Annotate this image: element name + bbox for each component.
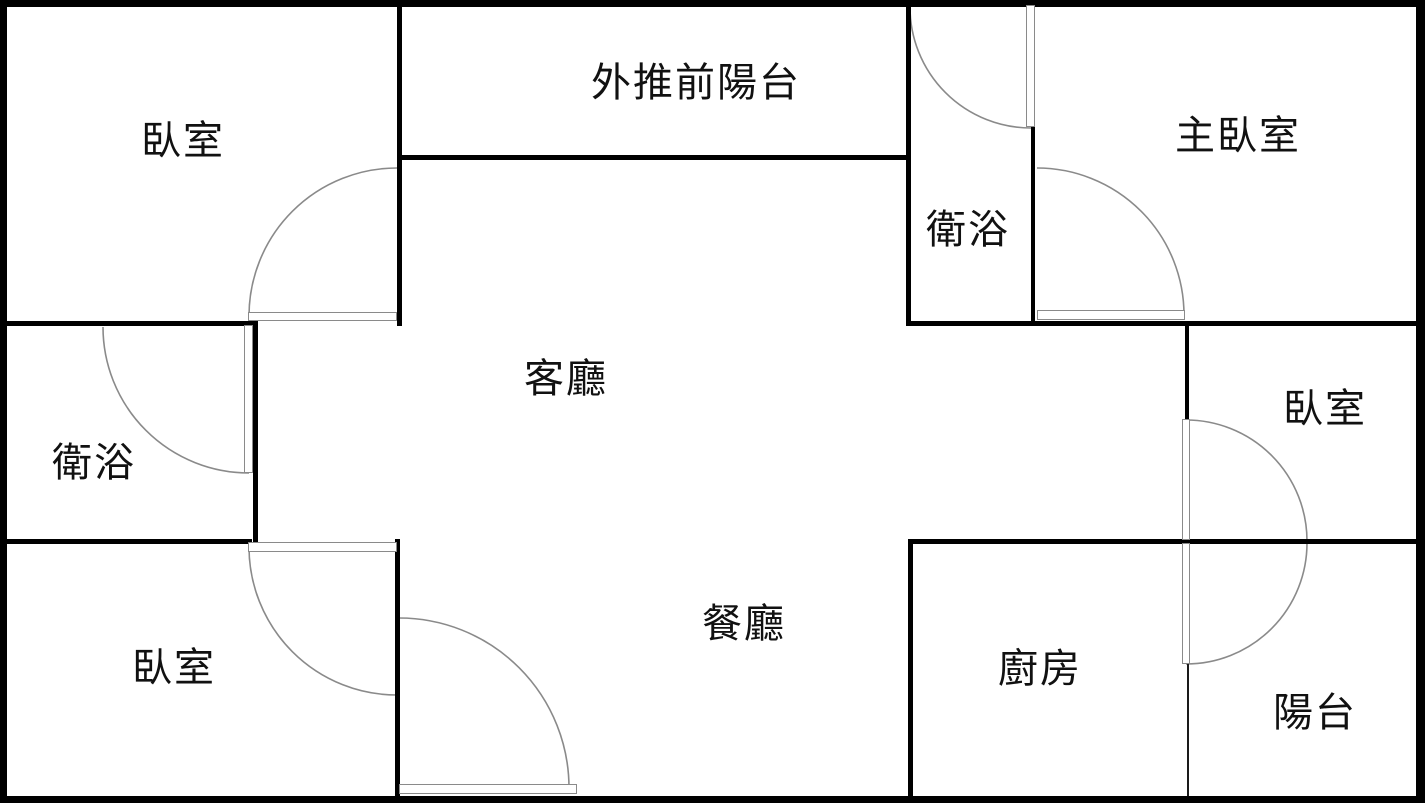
door-arc-master-bedroom — [1037, 168, 1184, 315]
room-label-bedroom-top-left: 臥室 — [141, 108, 225, 166]
wall-bedroom-r-left — [1185, 321, 1189, 420]
wall-master-bottom — [906, 321, 1189, 326]
door-leaf-bathroom-left — [244, 325, 253, 473]
door-arc-bathroom-top-right — [910, 7, 1031, 128]
door-leaf-master-bedroom — [1037, 310, 1185, 320]
wall-bedroom-r-top — [1185, 321, 1425, 326]
door-arc-bedroom-bottom-left — [249, 547, 397, 695]
door-leaf-bathroom-top-right — [1026, 5, 1035, 127]
room-label-bathroom-left: 衛浴 — [52, 430, 136, 488]
wall-bath-tr-left — [906, 5, 911, 326]
room-label-rear-balcony: 陽台 — [1273, 680, 1357, 738]
room-label-bathroom-top-right: 衛浴 — [926, 197, 1010, 255]
wall-bath-l-right — [253, 321, 258, 544]
door-arc-entry — [399, 618, 569, 788]
wall-kitchen-left — [908, 539, 913, 801]
room-label-living-room: 客廳 — [524, 346, 608, 404]
room-label-master-bedroom: 主臥室 — [1175, 103, 1301, 161]
door-leaf-bedroom-top-left — [248, 312, 397, 321]
wall-bedroom-tl-right — [397, 5, 402, 326]
wall-bath-tr-right — [1031, 125, 1035, 326]
door-arc-bedroom-right — [1186, 420, 1307, 541]
door-leaf-bedroom-right — [1182, 419, 1190, 540]
door-leaf-entry — [399, 784, 577, 794]
wall-balcony-bottom — [399, 155, 908, 160]
door-leaf-bedroom-bottom-left — [248, 542, 397, 552]
door-arc-kitchen-balcony — [1186, 543, 1307, 664]
room-label-bedroom-bottom-left: 臥室 — [132, 635, 216, 693]
door-leaf-kitchen-balcony — [1182, 543, 1190, 664]
room-label-front-balcony: 外推前陽台 — [591, 50, 801, 108]
wall-outer-left — [0, 0, 7, 803]
wall-bath-l-bottom — [0, 539, 252, 544]
wall-bedroom-bl-right — [395, 539, 400, 801]
door-arc-bedroom-top-left — [249, 168, 397, 316]
room-label-bedroom-right: 臥室 — [1283, 376, 1367, 434]
room-label-kitchen: 廚房 — [998, 636, 1082, 694]
wall-outer-right — [1416, 0, 1425, 803]
floorplan-canvas: 臥室外推前陽台主臥室衛浴客廳衛浴臥室臥室餐廳廚房陽台 — [0, 0, 1425, 803]
room-label-dining-room: 餐廳 — [702, 591, 786, 649]
wall-south-middle — [908, 539, 1425, 544]
wall-bedroom-tl-bottom — [0, 321, 258, 326]
wall-outer-top — [0, 0, 1425, 7]
wall-kitchen-balcony-divider — [1187, 664, 1189, 796]
wall-outer-bottom — [0, 796, 1425, 803]
